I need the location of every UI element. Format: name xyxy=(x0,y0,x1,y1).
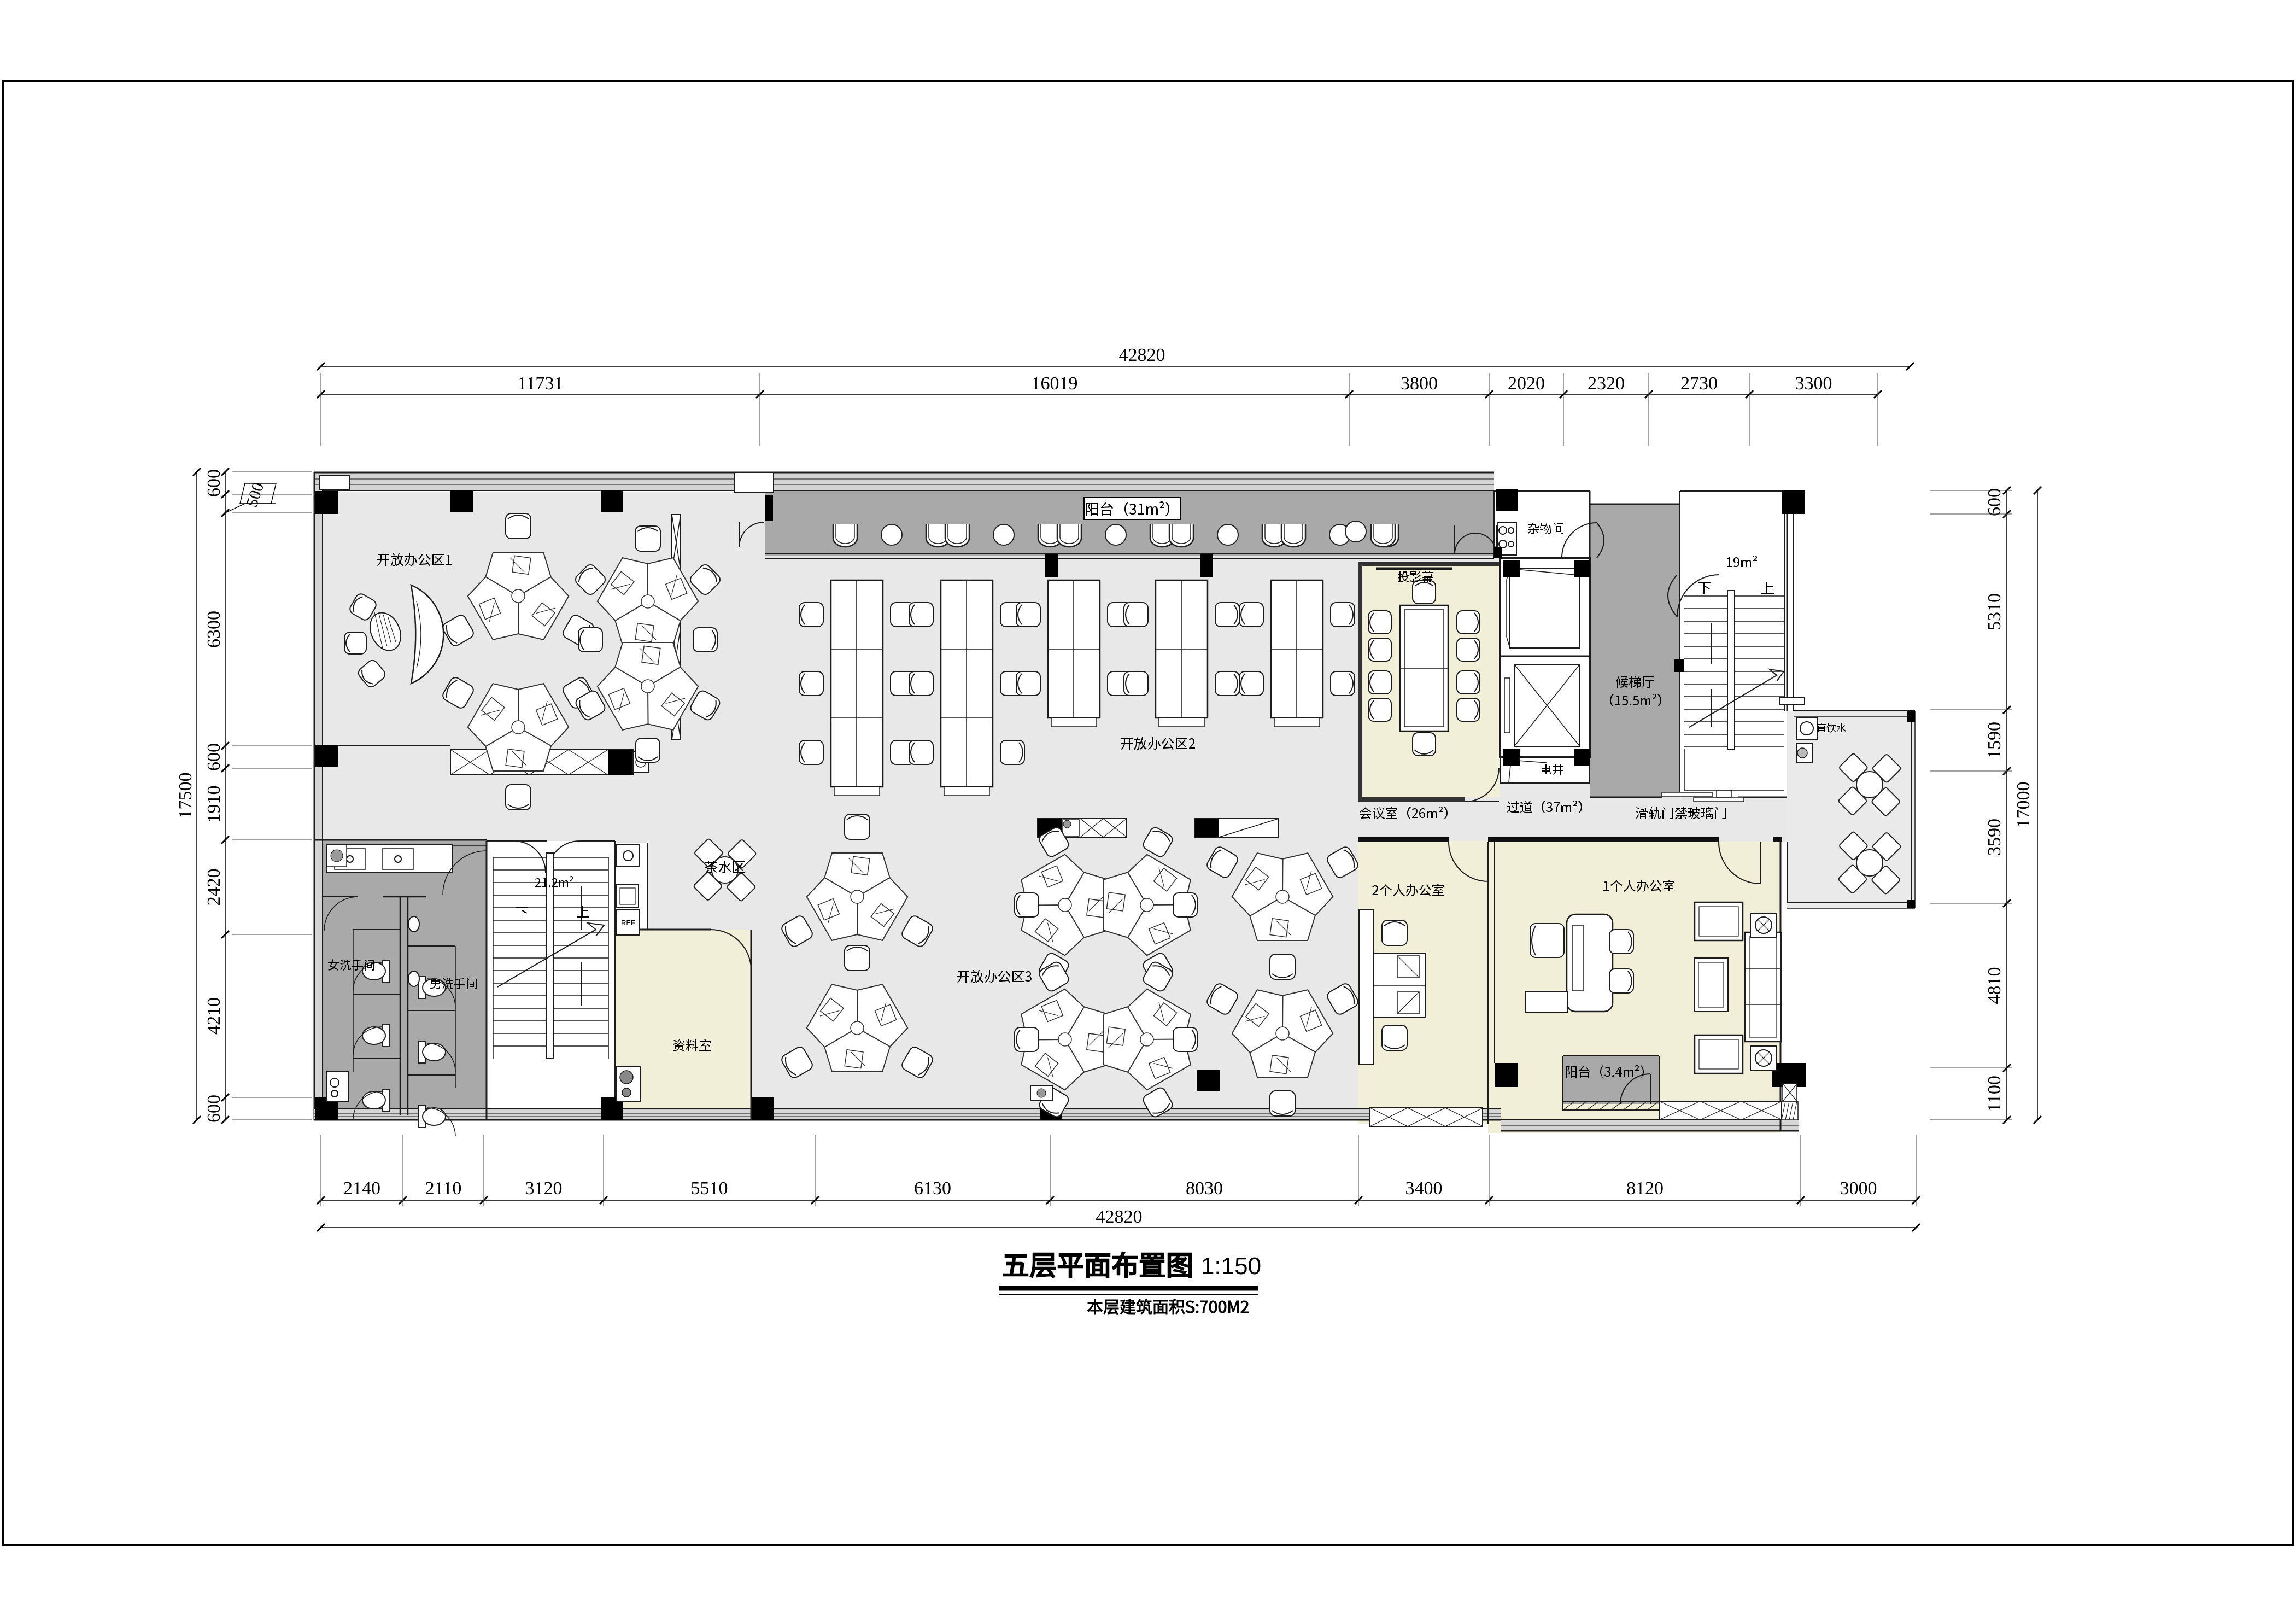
svg-text:17500: 17500 xyxy=(175,773,196,819)
svg-text:8120: 8120 xyxy=(1626,1178,1664,1199)
svg-text:3000: 3000 xyxy=(1840,1178,1877,1199)
svg-text:6300: 6300 xyxy=(204,611,224,648)
svg-text:REF: REF xyxy=(621,919,635,927)
svg-text:42820: 42820 xyxy=(1119,345,1165,365)
svg-text:2420: 2420 xyxy=(204,869,224,906)
svg-text:2020: 2020 xyxy=(1508,373,1545,394)
svg-text:1590: 1590 xyxy=(1984,722,2005,759)
svg-text:3800: 3800 xyxy=(1401,373,1438,394)
svg-text:1100: 1100 xyxy=(1984,1076,2005,1112)
svg-text:3300: 3300 xyxy=(1795,373,1832,394)
svg-text:1910: 1910 xyxy=(204,786,224,823)
svg-text:3590: 3590 xyxy=(1984,819,2005,856)
svg-text:8030: 8030 xyxy=(1186,1178,1223,1199)
svg-text:2320: 2320 xyxy=(1588,373,1625,394)
svg-text:600: 600 xyxy=(204,743,224,771)
svg-text:3120: 3120 xyxy=(525,1178,563,1199)
svg-text:5510: 5510 xyxy=(691,1178,728,1199)
svg-text:600: 600 xyxy=(204,469,224,497)
svg-text:1:150: 1:150 xyxy=(1201,1253,1261,1280)
svg-text:16019: 16019 xyxy=(1032,373,1078,394)
svg-text:17000: 17000 xyxy=(2013,782,2034,828)
svg-text:5310: 5310 xyxy=(1984,593,2005,630)
svg-text:3400: 3400 xyxy=(1405,1178,1443,1199)
svg-text:2730: 2730 xyxy=(1680,373,1718,394)
svg-text:600: 600 xyxy=(204,1095,224,1123)
svg-text:4810: 4810 xyxy=(1984,967,2005,1004)
svg-text:2110: 2110 xyxy=(425,1178,462,1199)
svg-text:11731: 11731 xyxy=(518,373,564,394)
svg-text:600: 600 xyxy=(1984,488,2005,516)
svg-text:6130: 6130 xyxy=(914,1178,951,1199)
svg-text:4210: 4210 xyxy=(204,997,224,1035)
svg-text:42820: 42820 xyxy=(1096,1207,1143,1227)
svg-text:2140: 2140 xyxy=(343,1178,380,1199)
